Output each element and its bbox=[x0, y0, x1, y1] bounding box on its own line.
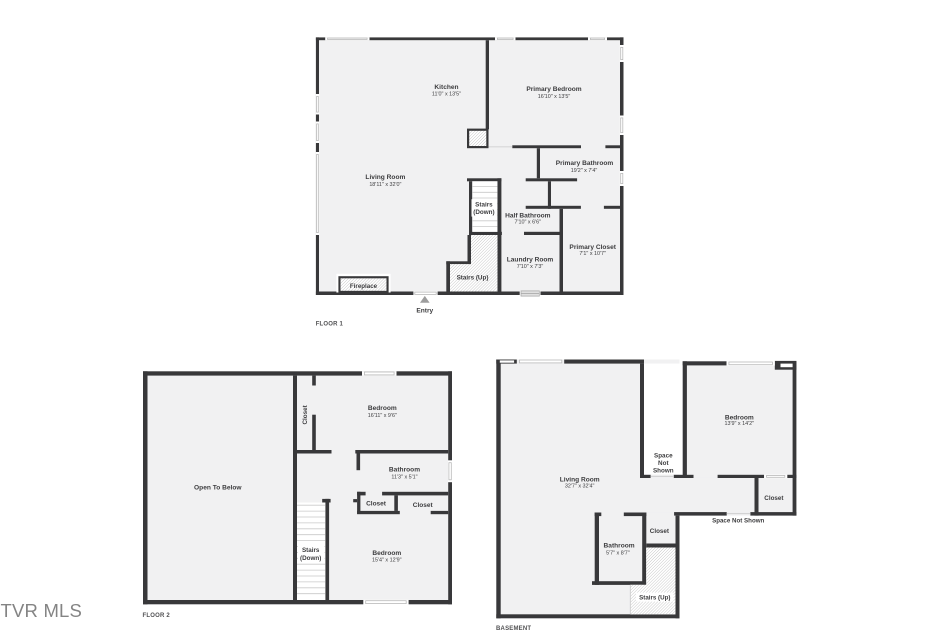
svg-text:13'9" x 14'2": 13'9" x 14'2" bbox=[725, 421, 755, 427]
svg-text:Primary Closet: Primary Closet bbox=[569, 244, 616, 251]
svg-text:Closet: Closet bbox=[366, 501, 387, 508]
svg-text:16'10" x 13'5": 16'10" x 13'5" bbox=[538, 94, 571, 100]
svg-text:FLOOR 1: FLOOR 1 bbox=[316, 322, 344, 328]
svg-text:(Down): (Down) bbox=[473, 209, 494, 216]
svg-text:Bedroom: Bedroom bbox=[368, 405, 397, 412]
svg-text:Entry: Entry bbox=[416, 308, 433, 315]
svg-text:7'10" x 7'3": 7'10" x 7'3" bbox=[517, 264, 544, 270]
svg-text:7'1" x 10'7": 7'1" x 10'7" bbox=[579, 251, 606, 257]
svg-text:Stairs (Up): Stairs (Up) bbox=[457, 274, 489, 281]
svg-text:FLOOR 2: FLOOR 2 bbox=[143, 613, 171, 619]
svg-text:Primary Bathroom: Primary Bathroom bbox=[556, 160, 614, 167]
svg-text:Half Bathroom: Half Bathroom bbox=[505, 213, 551, 220]
svg-text:Closet: Closet bbox=[302, 404, 309, 424]
svg-text:19'2" x 7'4": 19'2" x 7'4" bbox=[571, 168, 598, 174]
svg-text:32'7" x 32'4": 32'7" x 32'4" bbox=[565, 484, 595, 490]
svg-text:15'4" x 12'9": 15'4" x 12'9" bbox=[372, 558, 402, 564]
svg-text:(Down): (Down) bbox=[300, 555, 321, 562]
svg-text:Closet: Closet bbox=[413, 502, 434, 509]
svg-text:Kitchen: Kitchen bbox=[434, 84, 458, 91]
svg-text:Bathroom: Bathroom bbox=[604, 542, 635, 549]
svg-text:16'11" x 9'6": 16'11" x 9'6" bbox=[368, 413, 397, 419]
svg-text:Laundry Room: Laundry Room bbox=[507, 257, 554, 264]
svg-text:Open To Below: Open To Below bbox=[194, 485, 242, 492]
svg-text:Space Not Shown: Space Not Shown bbox=[712, 518, 764, 525]
svg-text:7'10" x 6'6": 7'10" x 6'6" bbox=[515, 220, 542, 226]
svg-text:Not: Not bbox=[658, 460, 669, 467]
svg-text:Stairs (Up): Stairs (Up) bbox=[639, 594, 670, 601]
svg-text:Space: Space bbox=[654, 453, 673, 460]
svg-text:Living Room: Living Room bbox=[560, 476, 600, 483]
svg-text:Stairs: Stairs bbox=[475, 201, 493, 208]
svg-text:5'7" x 8'7": 5'7" x 8'7" bbox=[606, 551, 630, 557]
svg-text:Shown: Shown bbox=[653, 468, 674, 475]
svg-text:Primary Bedroom: Primary Bedroom bbox=[526, 86, 581, 93]
svg-text:Bedroom: Bedroom bbox=[372, 550, 401, 557]
svg-text:Closet: Closet bbox=[764, 495, 784, 502]
svg-text:11'3" x 5'1": 11'3" x 5'1" bbox=[391, 474, 417, 480]
svg-text:Stairs: Stairs bbox=[302, 547, 320, 554]
svg-text:Bathroom: Bathroom bbox=[389, 466, 420, 473]
svg-text:11'0" x 13'5": 11'0" x 13'5" bbox=[432, 92, 461, 98]
svg-text:BASEMENT: BASEMENT bbox=[496, 626, 531, 632]
svg-text:Closet: Closet bbox=[650, 528, 670, 535]
svg-text:18'11" x 32'0": 18'11" x 32'0" bbox=[369, 182, 401, 188]
svg-text:Living Room: Living Room bbox=[365, 174, 405, 181]
svg-text:Fireplace: Fireplace bbox=[350, 283, 378, 290]
